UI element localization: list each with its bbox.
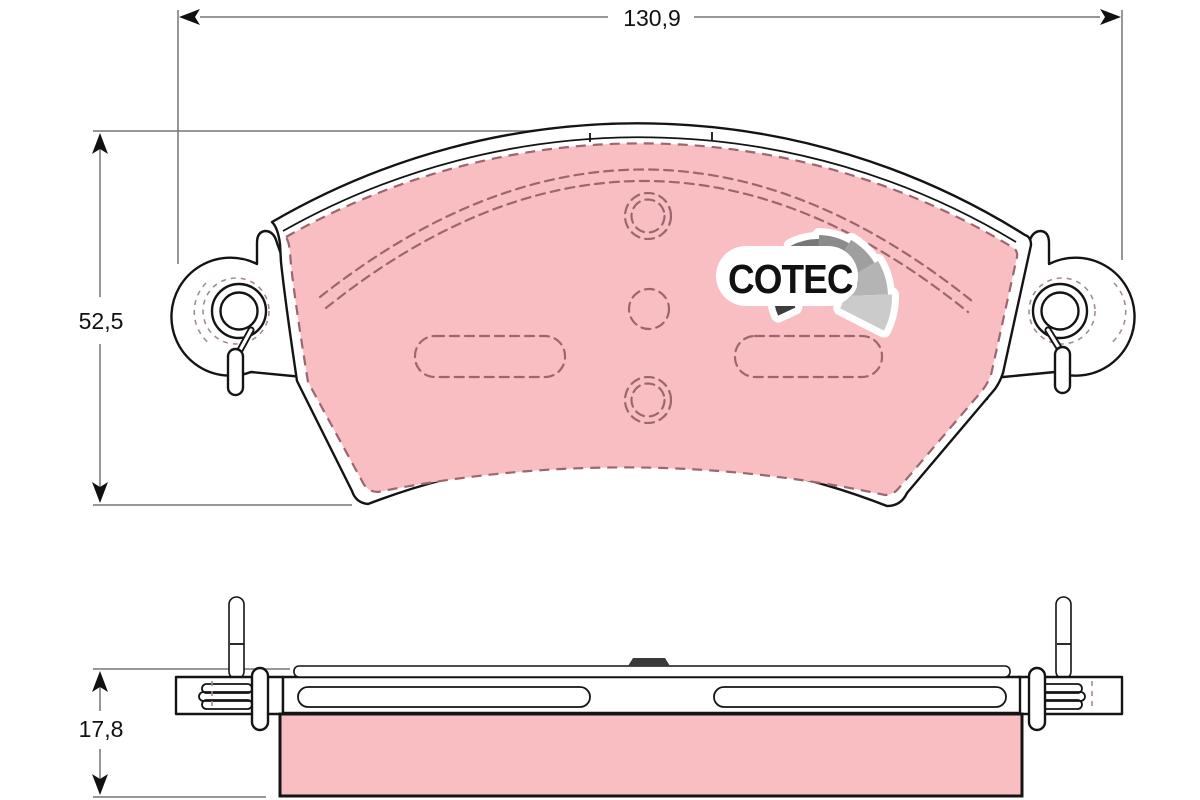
height-dimension-label: 52,5 <box>79 308 124 334</box>
wear-indicator-tab <box>628 658 670 666</box>
side-view <box>176 597 1122 796</box>
front-view: COTEC <box>171 123 1134 506</box>
width-dimension-label: 130,9 <box>623 5 681 31</box>
side-left-pin <box>229 597 244 679</box>
friction-material <box>286 143 1017 495</box>
cotec-logo-text: COTEC <box>728 257 853 302</box>
left-clip-tail <box>228 349 243 395</box>
drawing-canvas: 130,9 52,5 <box>0 0 1200 800</box>
side-shim <box>294 666 1010 677</box>
side-friction-material <box>280 714 1022 796</box>
side-right-pin <box>1056 597 1071 679</box>
cotec-logo-wordmark: COTEC <box>728 257 853 302</box>
arrow-left-icon <box>179 9 200 25</box>
side-left-clip-leg <box>252 668 268 730</box>
brake-pad-technical-drawing: 130,9 52,5 <box>0 0 1200 800</box>
right-clip-tail <box>1055 347 1070 393</box>
thickness-dimension-label: 17,8 <box>79 716 124 742</box>
side-right-clip-leg <box>1029 668 1045 730</box>
arrow-right-icon <box>1100 9 1121 25</box>
